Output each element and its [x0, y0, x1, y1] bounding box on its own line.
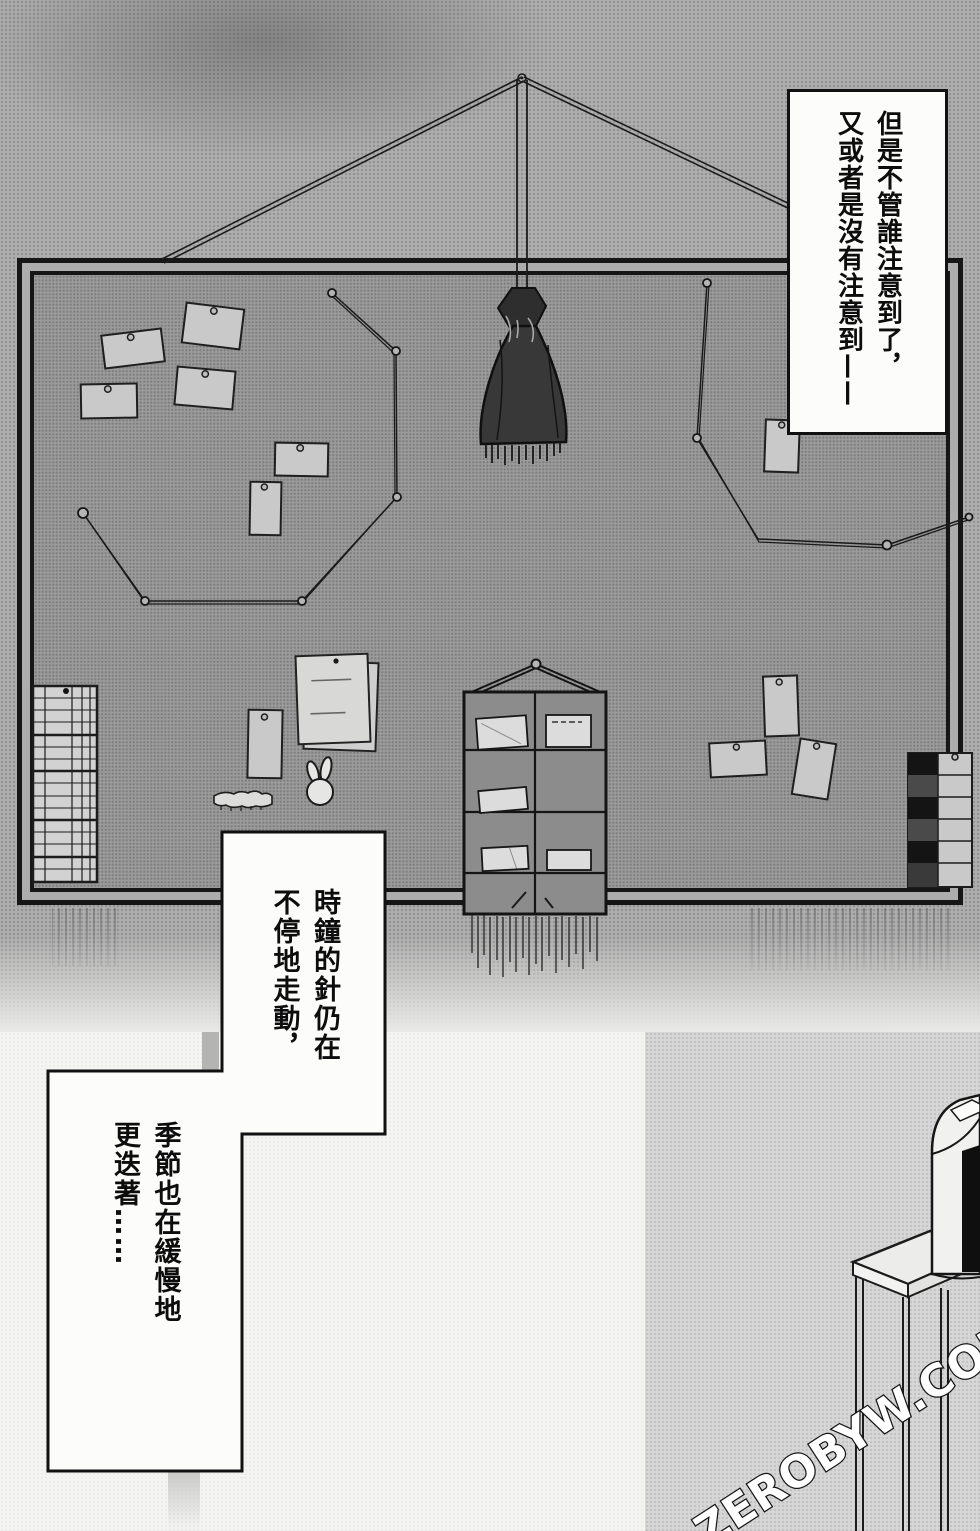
caption-seasons-line-2: 更迭著…… — [104, 1121, 145, 1469]
caption-seasons-text: 季節也在緩慢地 更迭著…… — [104, 1073, 185, 1469]
narration-balloon: 但是不管誰注意到了， 又或者是沒有注意到—— — [787, 89, 948, 435]
wall-notch-strip — [202, 1032, 219, 1072]
bottom-right-panel — [645, 1032, 980, 1531]
wall-fade-gradient — [0, 935, 980, 1032]
caption-seasons-line-1: 季節也在緩慢地 — [144, 1121, 185, 1469]
narration-line-1: 但是不管誰注意到了， — [868, 110, 907, 432]
narration-text: 但是不管誰注意到了， 又或者是沒有注意到—— — [829, 92, 907, 432]
narration-line-2: 又或者是沒有注意到—— — [829, 110, 868, 432]
caption-clock-text: 時鐘的針仍在 不停地走動， — [263, 834, 344, 1132]
caption-shadow-strip — [168, 1471, 200, 1531]
caption-seasons: 季節也在緩慢地 更迭著…… — [50, 1073, 238, 1469]
manga-page: ZEROBYW.COM 但是不管誰注意到了， 又或者是沒有注意到—— 時鐘的針仍… — [0, 0, 980, 1531]
caption-clock-line-2: 不停地走動， — [263, 888, 304, 1132]
caption-clock: 時鐘的針仍在 不停地走動， — [224, 834, 383, 1132]
caption-clock-line-1: 時鐘的針仍在 — [304, 888, 345, 1132]
